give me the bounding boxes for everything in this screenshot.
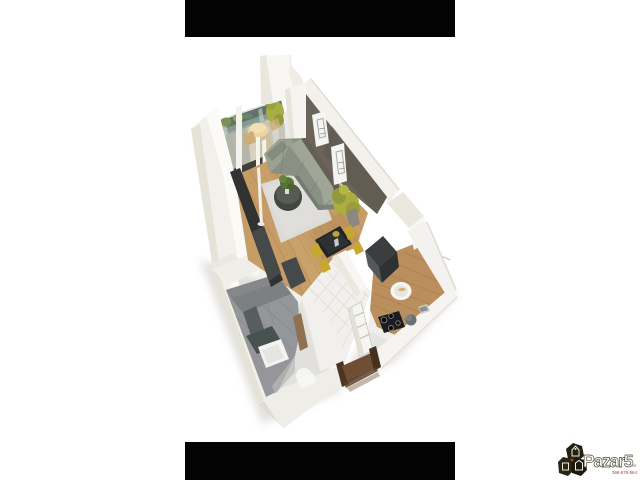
svg-text:368-678-564: 368-678-564: [612, 470, 637, 475]
svg-text:.net: .net: [629, 463, 637, 468]
svg-text:Pazar5: Pazar5: [583, 451, 634, 471]
